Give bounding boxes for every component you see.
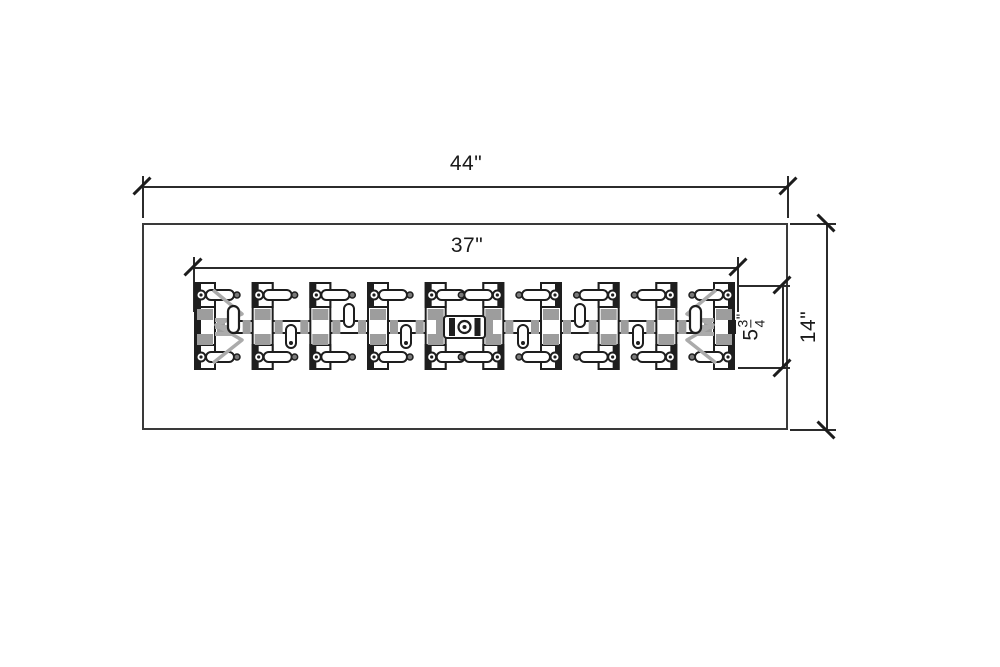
clip-peg-tip: [234, 292, 240, 298]
clip-grip-pad: [312, 334, 328, 345]
clip-peg-tip: [631, 292, 637, 298]
clip-peg-ring-dot: [669, 293, 672, 296]
connector-pad: [485, 320, 493, 334]
clip-grip-pad: [601, 334, 617, 345]
clip-peg-ring-dot: [611, 293, 614, 296]
clip-peg: [464, 352, 492, 362]
clip-peg-ring-dot: [430, 293, 433, 296]
end-spring-knob: [690, 306, 701, 333]
retainer-pin-dot: [521, 341, 525, 345]
clip-peg-ring-dot: [430, 355, 433, 358]
clip-grip-pad: [255, 309, 271, 320]
rail-pad: [646, 320, 654, 334]
rail-pad: [243, 320, 251, 334]
connector-bar: [449, 318, 455, 336]
rail-pad: [505, 320, 513, 334]
clip-grip-pad: [197, 309, 213, 320]
connector-bar: [475, 318, 481, 336]
retainer-pin-dot: [289, 341, 293, 345]
clip-peg: [321, 290, 349, 300]
clip-peg: [580, 290, 608, 300]
clip-peg-tip: [349, 292, 355, 298]
clip-peg-tip: [631, 354, 637, 360]
clip-grip-pad: [658, 309, 674, 320]
clip-grip-pad: [428, 309, 444, 320]
clip-peg-tip: [516, 292, 522, 298]
clip-peg-ring-dot: [669, 355, 672, 358]
clip-peg-ring-dot: [496, 293, 499, 296]
clip-peg: [522, 352, 550, 362]
clip-grip-pad: [370, 334, 386, 345]
clip-peg: [379, 290, 407, 300]
rail-pad: [358, 320, 366, 334]
clip-peg-tip: [458, 354, 464, 360]
clip-peg-tip: [407, 292, 413, 298]
clip-peg-tip: [689, 354, 695, 360]
clip-grip-pad: [601, 309, 617, 320]
clip-peg-ring-dot: [553, 355, 556, 358]
connector-pad: [436, 320, 444, 334]
clip-peg-ring-dot: [726, 293, 729, 296]
connector-hole-center: [463, 325, 467, 329]
retainer-pin-dot: [636, 341, 640, 345]
clip-peg-ring-dot: [372, 355, 375, 358]
clip-peg-ring-dot: [553, 293, 556, 296]
rail-pad: [300, 320, 308, 334]
clip-grip-pad: [658, 334, 674, 345]
clip-grip-pad: [197, 334, 213, 345]
clip-grip-pad: [370, 309, 386, 320]
rail-pad: [678, 320, 686, 334]
clip-grip-pad: [428, 334, 444, 345]
clip-peg: [321, 352, 349, 362]
clip-peg-ring-dot: [372, 293, 375, 296]
rail-pad: [390, 320, 398, 334]
clip-peg-ring-dot: [726, 355, 729, 358]
rail-pad: [275, 320, 283, 334]
clip-peg-ring-dot: [315, 293, 318, 296]
technical-drawing-page: 44" 37" 14" 5 3 4 ": [0, 0, 1000, 667]
end-spring-knob: [228, 306, 239, 333]
rail-pad: [332, 320, 340, 334]
retainer-pin: [344, 304, 354, 327]
clip-grip-pad: [716, 334, 732, 345]
clip-peg-ring-dot: [199, 293, 202, 296]
clip-peg: [379, 352, 407, 362]
clip-peg-tip: [458, 292, 464, 298]
rail-pad: [531, 320, 539, 334]
clip-grip-pad: [543, 309, 559, 320]
rail-pad: [621, 320, 629, 334]
clip-peg: [464, 290, 492, 300]
clip-peg-tip: [574, 354, 580, 360]
clip-peg: [264, 352, 292, 362]
clip-grip-pad: [255, 334, 271, 345]
clip-peg-ring-dot: [257, 293, 260, 296]
clip-peg-ring-dot: [496, 355, 499, 358]
clip-grip-pad: [543, 334, 559, 345]
clip-peg-tip: [574, 292, 580, 298]
rail-pad: [416, 320, 424, 334]
clip-peg-tip: [516, 354, 522, 360]
rail-assembly-drawing: [0, 0, 1000, 667]
clip-peg: [264, 290, 292, 300]
clip-peg-ring-dot: [257, 355, 260, 358]
clip-peg: [637, 290, 665, 300]
retainer-pin-dot: [404, 341, 408, 345]
clip-grip-pad: [485, 309, 501, 320]
clip-peg-tip: [407, 354, 413, 360]
retainer-pin: [575, 304, 585, 327]
clip-grip-pad: [716, 309, 732, 320]
clip-peg-tip: [234, 354, 240, 360]
clip-peg: [580, 352, 608, 362]
clip-peg: [522, 290, 550, 300]
clip-peg-tip: [349, 354, 355, 360]
clip-peg-ring-dot: [199, 355, 202, 358]
clip-grip-pad: [485, 334, 501, 345]
clip-peg: [637, 352, 665, 362]
clip-peg-tip: [292, 292, 298, 298]
clip-grip-pad: [312, 309, 328, 320]
clip-peg-tip: [689, 292, 695, 298]
clip-peg-ring-dot: [315, 355, 318, 358]
rail-pad: [589, 320, 597, 334]
clip-peg-tip: [292, 354, 298, 360]
rail-pad: [563, 320, 571, 334]
clip-peg-ring-dot: [611, 355, 614, 358]
